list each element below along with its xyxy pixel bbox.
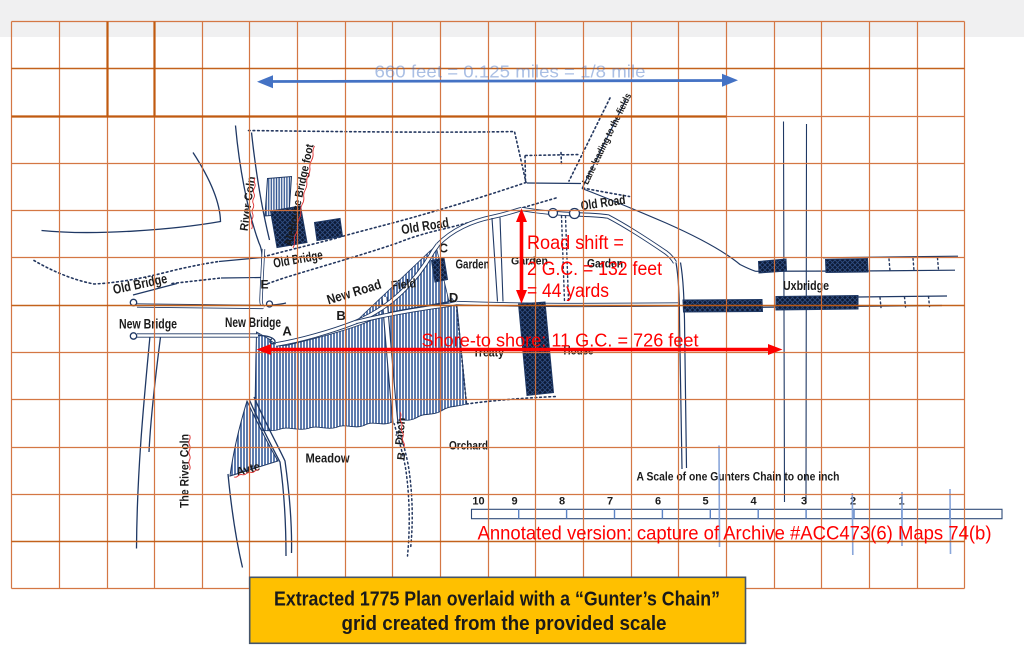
svg-text:9: 9 xyxy=(511,496,517,508)
svg-text:A Scale of one Gunters Chain t: A Scale of one Gunters Chain to one inch xyxy=(637,470,840,484)
svg-text:Orchard: Orchard xyxy=(449,439,488,453)
svg-text:Extracted 1775 Plan overlaid w: Extracted 1775 Plan overlaid with a “Gun… xyxy=(274,588,720,611)
svg-text:3: 3 xyxy=(801,496,807,508)
svg-text:Meadow: Meadow xyxy=(306,452,350,466)
svg-text:Uxbridge: Uxbridge xyxy=(783,279,829,293)
svg-text:7: 7 xyxy=(607,496,613,508)
svg-text:E: E xyxy=(260,278,268,292)
svg-text:4: 4 xyxy=(750,496,757,508)
svg-text:grid created from the provided: grid created from the provided scale xyxy=(342,612,667,635)
svg-text:5: 5 xyxy=(702,496,708,508)
svg-text:B: B xyxy=(396,451,409,460)
svg-text:Garden: Garden xyxy=(456,258,490,272)
svg-text:B: B xyxy=(336,308,345,323)
svg-text:New Bridge: New Bridge xyxy=(225,315,281,330)
svg-text:New Bridge: New Bridge xyxy=(119,317,177,332)
svg-text:Field: Field xyxy=(390,276,416,293)
svg-text:2 G.C. = 132 feet: 2 G.C. = 132 feet xyxy=(527,258,663,280)
svg-text:= 44 yards: = 44 yards xyxy=(527,280,609,302)
svg-text:6: 6 xyxy=(655,496,661,508)
svg-text:D: D xyxy=(449,290,458,305)
svg-text:Shore-to shore: 11 G.C. = 726: Shore-to shore: 11 G.C. = 726 feet xyxy=(422,331,699,351)
svg-text:10: 10 xyxy=(472,496,484,508)
svg-text:8: 8 xyxy=(559,496,565,508)
svg-text:660 feet = 0.125 miles = 1/8 m: 660 feet = 0.125 miles = 1/8 mile xyxy=(375,62,646,82)
svg-text:Annotated version: capture of: Annotated version: capture of Archive #A… xyxy=(478,523,992,545)
svg-text:A: A xyxy=(282,324,292,339)
svg-text:Road shift =: Road shift = xyxy=(527,232,624,254)
